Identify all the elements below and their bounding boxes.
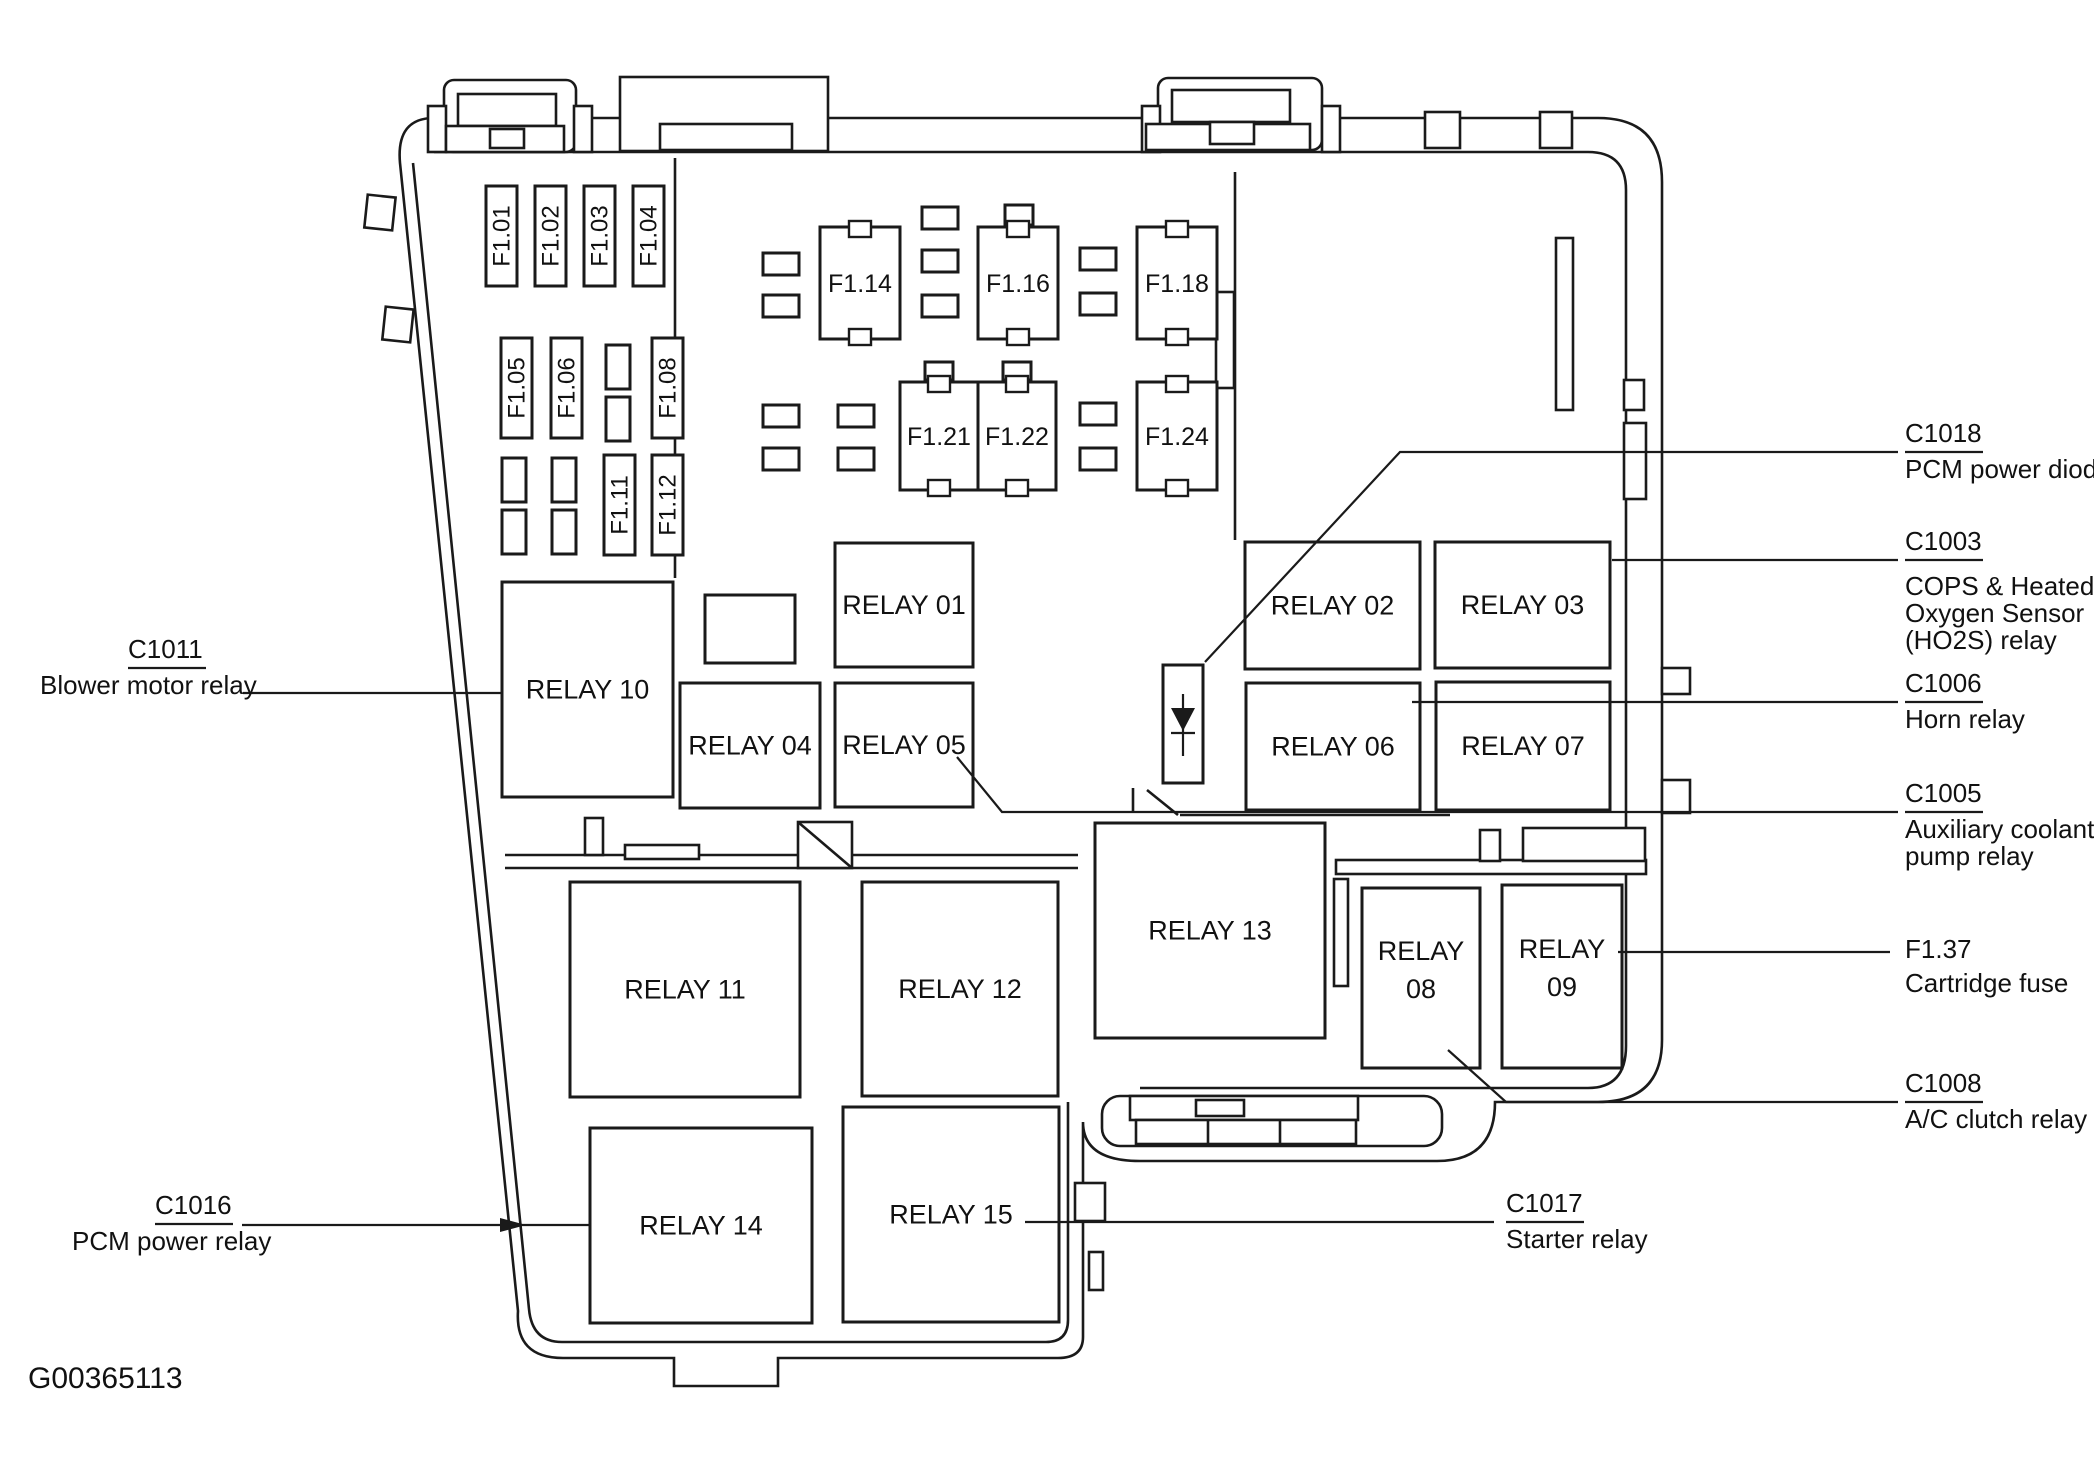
relay-label: RELAY 07 (1461, 731, 1585, 761)
small-fuse-h-13 (1080, 448, 1116, 470)
top-bracket-left (428, 80, 592, 152)
callout-description: Starter relay (1506, 1224, 1648, 1254)
fuse-notch-top (1006, 376, 1028, 392)
fuse-label: F1.22 (985, 423, 1049, 451)
relay-label: RELAY 06 (1271, 732, 1395, 762)
unlabeled-box-1 (705, 595, 795, 663)
relay-05: RELAY 05 (835, 683, 973, 807)
lower-right-tab-2 (1089, 1252, 1103, 1290)
fuse-f1-18: F1.18 (1137, 221, 1217, 345)
left-edge-tab-1 (364, 195, 395, 231)
relay-label: RELAY (1519, 934, 1606, 964)
left-edge-tab-2 (382, 307, 413, 343)
fuse-notch-bottom (849, 329, 871, 345)
right-inner-tab-1 (1624, 380, 1644, 410)
relay-label: RELAY 01 (842, 590, 966, 620)
callout-c1017: C1017Starter relay (1506, 1188, 1648, 1254)
relay0809-tab-large (1523, 828, 1645, 861)
fuse-label: F1.11 (607, 475, 634, 535)
fuse-notch-bottom (1166, 329, 1188, 345)
small-fuse-h-10 (838, 405, 874, 427)
fuse-f1-06: F1.06 (551, 338, 582, 438)
relay08-side-bar (1334, 879, 1348, 986)
relay-03: RELAY 03 (1435, 542, 1610, 668)
fuse-f1-11: F1.11 (604, 455, 635, 555)
callout-title: C1008 (1905, 1068, 1982, 1098)
fuse-f1-21: F1.21 (900, 376, 978, 496)
fuse-label: F1.01 (489, 205, 516, 266)
relay-label: RELAY 15 (889, 1200, 1013, 1230)
small-fuse-h-5 (922, 295, 958, 317)
top-bracket-right (1142, 78, 1340, 152)
callout-title: C1003 (1905, 526, 1982, 556)
right-inner-tab-2 (1624, 423, 1646, 499)
relay-15: RELAY 15 (843, 1107, 1059, 1322)
fuse-f1-04: F1.04 (633, 186, 664, 286)
fuse-label: F1.03 (587, 205, 614, 266)
fuse-f1-05: F1.05 (501, 338, 532, 438)
figure-id: G00365113 (28, 1362, 183, 1395)
bottom-connector (1102, 1096, 1442, 1146)
callout-c1016: C1016PCM power relay (72, 1190, 271, 1256)
right-outer-tab-1 (1662, 668, 1690, 694)
relay-label: RELAY (1378, 936, 1465, 966)
callout-description: PCM power relay (72, 1226, 271, 1256)
fuse-notch-top (928, 376, 950, 392)
small-fuse-h-12 (1080, 403, 1116, 425)
callout-description: (HO2S) relay (1905, 625, 2057, 655)
fuse-notch-bottom (928, 480, 950, 496)
relay-10: RELAY 10 (502, 582, 673, 797)
fuse-f1-03: F1.03 (584, 186, 615, 286)
relay-13: RELAY 13 (1095, 823, 1325, 1038)
fuse-label: F1.02 (538, 205, 565, 266)
relay-12: RELAY 12 (862, 882, 1058, 1096)
relay-label: RELAY 13 (1148, 916, 1272, 946)
lower-right-tab-1 (1075, 1183, 1105, 1221)
leader-c1005 (957, 757, 1898, 812)
callout-title: C1018 (1905, 418, 1982, 448)
callout-c1008: C1008A/C clutch relay (1905, 1068, 2087, 1134)
fuse-f1-08: F1.08 (652, 338, 683, 438)
relay-14: RELAY 14 (590, 1128, 812, 1323)
fuse-notch-top (1166, 376, 1188, 392)
fuse-f1-24: F1.24 (1137, 376, 1217, 496)
relay-label: RELAY 12 (898, 974, 1022, 1004)
callout-description: Oxygen Sensor (1905, 598, 2085, 628)
small-fuse-v-1 (606, 345, 630, 389)
top-edge-tab-2 (1540, 112, 1572, 148)
callout-description: COPS & Heated (1905, 571, 2094, 601)
fuse-label: F1.06 (554, 357, 581, 418)
callout-description: Cartridge fuse (1905, 968, 2068, 998)
relay-label: RELAY 03 (1461, 590, 1585, 620)
relay-01: RELAY 01 (835, 543, 973, 667)
relay-label: RELAY 14 (639, 1211, 763, 1241)
callout-description: pump relay (1905, 841, 2034, 871)
fuse-label: F1.16 (986, 270, 1050, 298)
callout-c1018: C1018PCM power diode (1905, 418, 2094, 484)
callout-c1005: C1005Auxiliary coolantpump relay (1905, 778, 2094, 871)
fuse-notch-top (1166, 221, 1188, 237)
small-fuse-h-2 (763, 295, 799, 317)
callout-description: A/C clutch relay (1905, 1104, 2087, 1134)
callout-title: C1011 (128, 634, 203, 664)
relay-label: 09 (1547, 972, 1577, 1002)
fuse-label: F1.08 (655, 357, 682, 418)
callout-c1011: C1011Blower motor relay (40, 634, 257, 700)
callout-description: Blower motor relay (40, 670, 257, 700)
small-fuse-v-3 (502, 458, 526, 502)
callout-f1-37: F1.37Cartridge fuse (1905, 934, 2068, 998)
small-fuse-h-9 (763, 448, 799, 470)
relay-label: RELAY 02 (1271, 591, 1395, 621)
small-fuse-h-7 (1080, 293, 1116, 315)
callout-description: Auxiliary coolant (1905, 814, 2094, 844)
fuse-box-diagram-page: F1.01F1.02F1.03F1.04F1.05F1.06F1.08F1.11… (0, 0, 2094, 1463)
fuse-notch-top (1007, 221, 1029, 237)
small-fuse-h-1 (763, 253, 799, 275)
small-fuse-v-6 (552, 510, 576, 554)
callout-leaders-layer (242, 452, 1898, 1232)
small-fuse-v-2 (606, 397, 630, 441)
top-bracket-middle (620, 77, 828, 151)
fuse-label: F1.12 (655, 474, 682, 535)
callout-title: C1016 (155, 1190, 232, 1220)
fuse-f1-02: F1.02 (535, 186, 566, 286)
relay-label: RELAY 05 (842, 730, 966, 760)
small-fuse-h-8 (763, 405, 799, 427)
relay-08: RELAY08 (1362, 888, 1480, 1068)
fuse-f1-16: F1.16 (978, 221, 1058, 345)
relay-11: RELAY 11 (570, 882, 800, 1097)
fuse-label: F1.04 (636, 205, 663, 266)
shelf-slot (625, 845, 699, 859)
callout-title: C1006 (1905, 668, 1982, 698)
fuse-f1-01: F1.01 (486, 186, 517, 286)
relay-02: RELAY 02 (1245, 542, 1420, 669)
callout-title: C1017 (1506, 1188, 1583, 1218)
fuse-label: F1.14 (828, 270, 892, 298)
fuse-label: F1.18 (1145, 270, 1209, 298)
relay-label: RELAY 10 (526, 675, 650, 705)
pcm-power-diode (1163, 665, 1203, 783)
relay-04: RELAY 04 (680, 683, 820, 808)
callout-title: C1005 (1905, 778, 1982, 808)
fuse-notch-bottom (1007, 329, 1029, 345)
right-outer-tab-2 (1662, 780, 1690, 813)
relay-label: RELAY 11 (624, 975, 746, 1005)
fuse-f1-14: F1.14 (820, 221, 900, 345)
relay-06: RELAY 06 (1246, 683, 1420, 810)
shelf-tab (585, 818, 603, 855)
fuse-box-diagram: F1.01F1.02F1.03F1.04F1.05F1.06F1.08F1.11… (0, 0, 2094, 1463)
fuse-notch-top (849, 221, 871, 237)
relay-label: RELAY 04 (688, 731, 812, 761)
fuse-label: F1.21 (907, 423, 971, 451)
relay-label: 08 (1406, 974, 1436, 1004)
fuse-label: F1.24 (1145, 423, 1209, 451)
components-layer: F1.01F1.02F1.03F1.04F1.05F1.06F1.08F1.11… (486, 186, 1622, 1323)
callout-title: F1.37 (1905, 934, 1972, 964)
callout-c1006: C1006Horn relay (1905, 668, 2025, 734)
top-edge-tab-1 (1425, 112, 1460, 148)
small-fuse-h-6 (1080, 248, 1116, 270)
small-fuse-h-3 (922, 207, 958, 229)
callout-description: Horn relay (1905, 704, 2025, 734)
small-fuse-v-5 (552, 458, 576, 502)
fuse-notch-bottom (1006, 480, 1028, 496)
callout-description: PCM power diode (1905, 454, 2094, 484)
fuse-f1-12: F1.12 (652, 455, 683, 555)
small-fuse-h-4 (922, 250, 958, 272)
relay0809-tab-small (1480, 830, 1500, 861)
small-fuse-v-4 (502, 510, 526, 554)
small-fuse-h-11 (838, 448, 874, 470)
callout-c1003: C1003COPS & HeatedOxygen Sensor(HO2S) re… (1905, 526, 2094, 655)
relay-09: RELAY09 (1502, 885, 1622, 1068)
corner-slot (1556, 238, 1573, 410)
fuse-label: F1.05 (504, 357, 531, 418)
shelf-lines (505, 855, 1078, 868)
fuse-f1-22: F1.22 (978, 376, 1056, 496)
divider-slot (1216, 292, 1234, 388)
fuse-notch-bottom (1166, 480, 1188, 496)
